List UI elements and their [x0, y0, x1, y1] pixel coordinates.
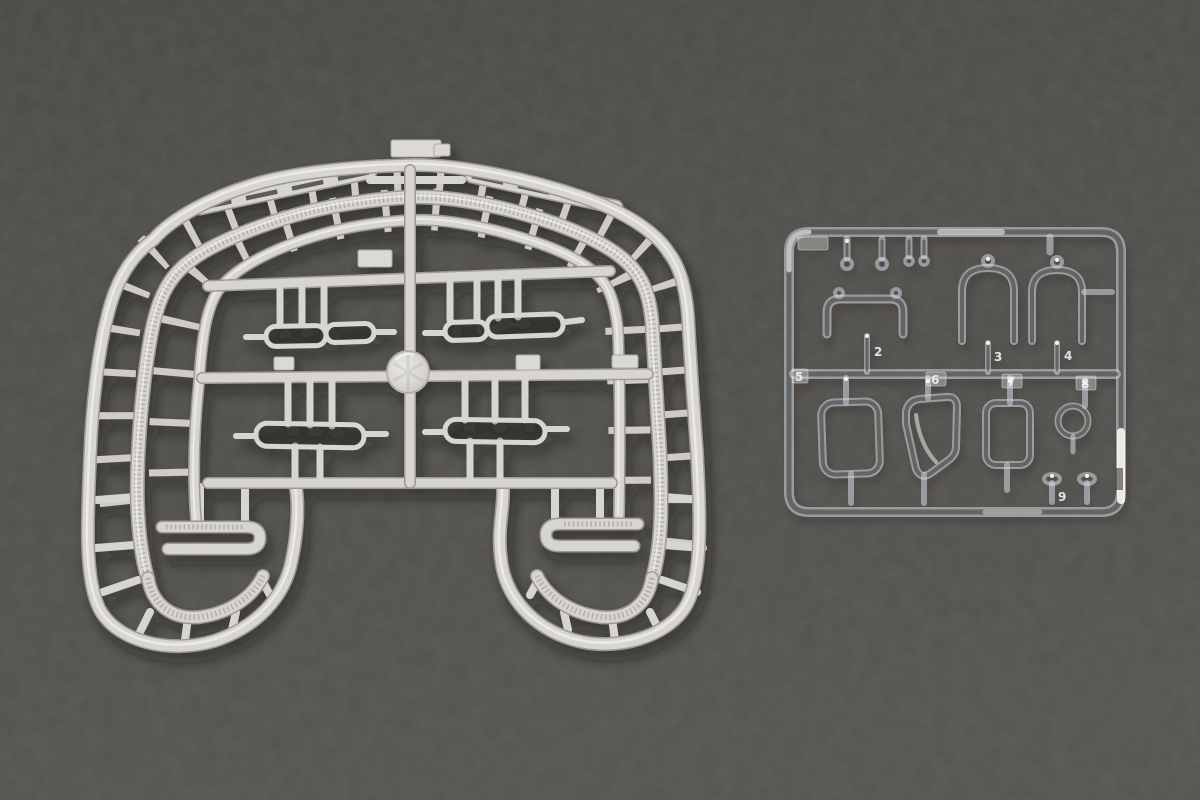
part-label-2: 2 — [874, 345, 882, 359]
part-label-4: 4 — [1064, 349, 1072, 363]
part-label-5: 5 — [795, 370, 803, 384]
sprue-letter-tag — [798, 237, 828, 250]
sprue-photo-canvas: 2 3 4 5 6 7 8 9 — [0, 0, 1200, 800]
part-label-8: 8 — [1081, 377, 1089, 391]
part-label-9: 9 — [1058, 490, 1066, 504]
photo-model-kit-sprues: 2 3 4 5 6 7 8 9 — [0, 0, 1200, 800]
part-label-7: 7 — [1007, 375, 1015, 389]
letter-tab — [358, 250, 392, 267]
part-label-6: 6 — [931, 373, 939, 387]
gray-disc-part — [387, 351, 429, 393]
part-label-3: 3 — [994, 350, 1002, 364]
